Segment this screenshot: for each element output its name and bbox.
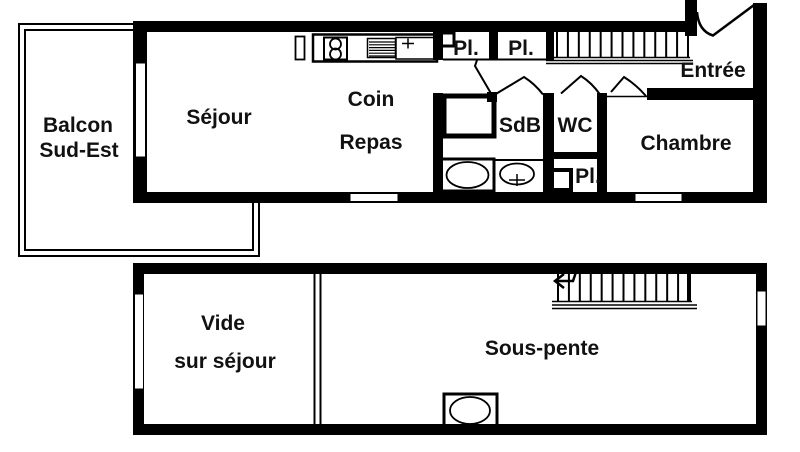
upper-level-plan: Vide sur séjour Sous-pente: [133, 263, 767, 435]
window-icon: [136, 63, 146, 157]
room-label-placard-3: Pl.: [575, 165, 601, 188]
main-level-plan: Balcon Sud-Est Séjour Coin Repas Pl. Pl.…: [39, 0, 767, 203]
floor-plan-drawing: Balcon Sud-Est Séjour Coin Repas Pl. Pl.…: [0, 0, 800, 452]
room-label-vide-1: Vide: [201, 312, 245, 335]
room-label-balcon-2: Sud-Est: [39, 139, 118, 162]
room-label-entree: Entrée: [680, 59, 745, 82]
window-icon: [135, 294, 144, 389]
room-label-sous-pente: Sous-pente: [485, 337, 599, 360]
wall-right: [753, 3, 767, 203]
wc-closet-divider-wall: [543, 152, 607, 159]
closet-divider-wall: [489, 32, 498, 60]
window-icon: [757, 291, 766, 326]
room-label-placard-1: Pl.: [453, 37, 479, 60]
window-icon: [350, 194, 398, 202]
window-icon: [635, 194, 682, 202]
room-label-placard-2: Pl.: [508, 37, 534, 60]
room-label-chambre: Chambre: [640, 132, 731, 155]
room-label-wc: WC: [558, 114, 593, 137]
entrance-wall-stub: [685, 0, 697, 36]
floor-plan-page: Balcon Sud-Est Séjour Coin Repas Pl. Pl.…: [0, 0, 800, 452]
room-label-vide-2: sur séjour: [174, 350, 276, 373]
room-label-sdb: SdB: [499, 114, 541, 137]
bedroom-hall-wall: [647, 88, 753, 100]
wall-top: [133, 263, 767, 274]
room-label-sejour: Séjour: [186, 106, 251, 129]
closet-stairs-divider-wall: [546, 32, 554, 60]
wall-right: [756, 263, 767, 435]
room-label-coin-repas-2: Repas: [339, 131, 402, 154]
room-label-coin-repas-1: Coin: [348, 88, 395, 111]
wall-top: [133, 21, 697, 32]
room-label-balcon-1: Balcon: [43, 114, 113, 137]
